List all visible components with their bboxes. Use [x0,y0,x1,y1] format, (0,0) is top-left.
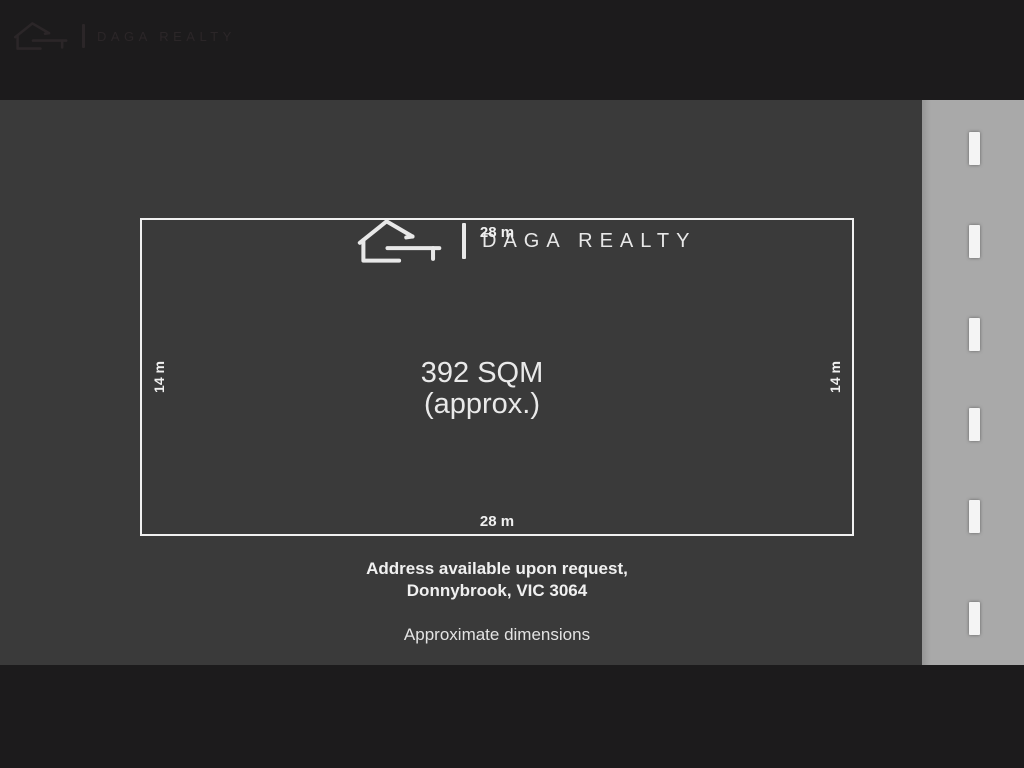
lot-boundary: 28 m 28 m 14 m 14 m 392 SQM (approx.) [140,218,854,536]
dimensions-footnote: Approximate dimensions [140,625,854,645]
lot-area-qualifier: (approx.) [421,389,544,420]
dimension-top: 28 m [142,224,852,241]
top-bar: DAGA REALTY [0,0,1024,100]
dimension-right: 14 m [827,361,843,393]
lane-marking [969,408,980,441]
lane-marking [969,225,980,258]
brand-name: DAGA REALTY [97,29,236,44]
dimension-bottom: 28 m [142,513,852,530]
property-flyer: DAGA REALTY DAGA REALTY 28 m 28 m 14 m 1… [0,0,1024,768]
brand-logo-ghost: DAGA REALTY [12,20,236,52]
lane-marking [969,500,980,533]
lot-area-value: 392 SQM [421,358,544,389]
lane-marking [969,318,980,351]
lane-marking [969,132,980,165]
logo-divider [82,24,85,48]
address-line-1: Address available upon request, [140,558,854,580]
footer-bar: DAGA REALTY [0,665,1024,768]
address-block: Address available upon request, Donnybro… [140,558,854,602]
road-strip [922,100,1024,665]
dimension-left: 14 m [151,361,167,393]
lane-marking [969,602,980,635]
house-logo-icon [12,20,70,52]
address-line-2: Donnybrook, VIC 3064 [140,580,854,602]
lot-area-label: 392 SQM (approx.) [421,358,544,420]
